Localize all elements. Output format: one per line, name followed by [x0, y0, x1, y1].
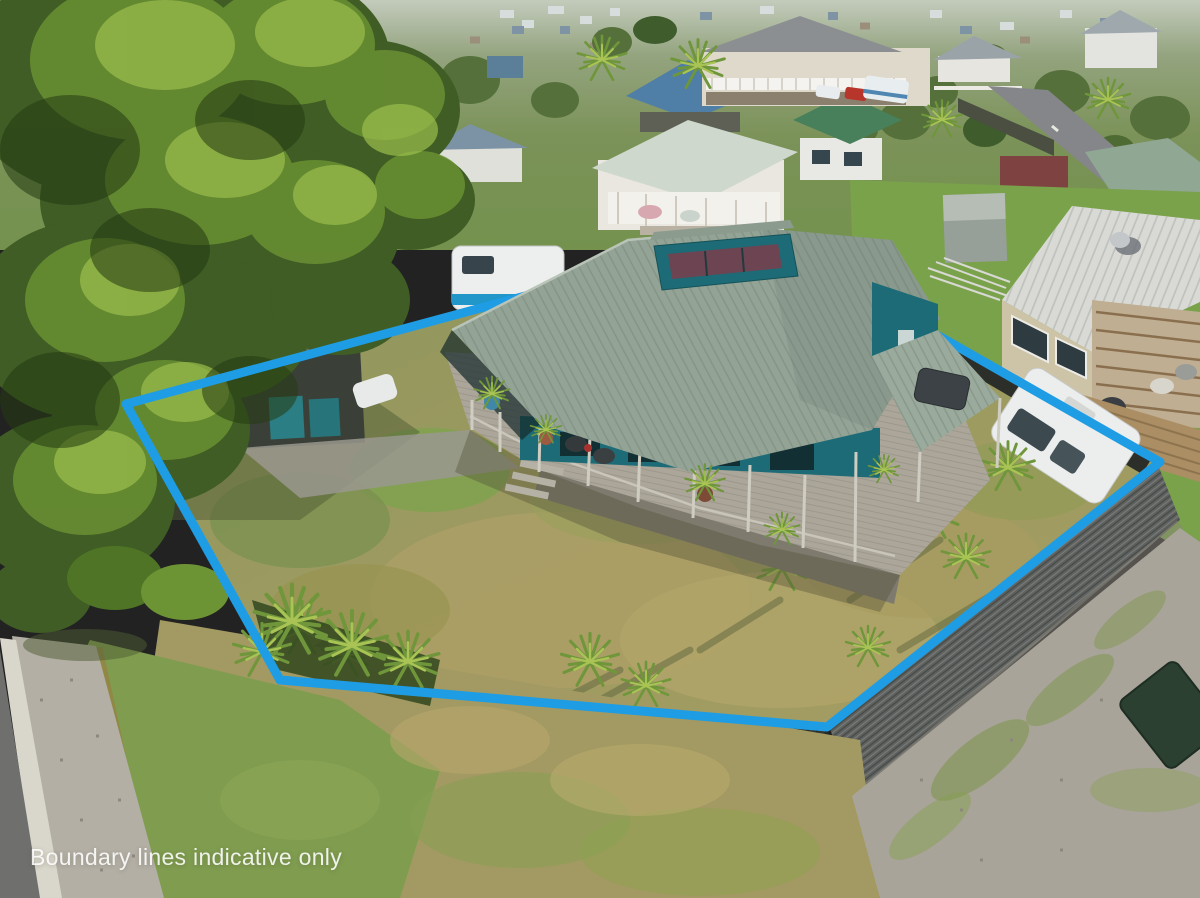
shed-roof: [943, 193, 1006, 221]
house-wall: [1085, 28, 1157, 68]
rv-window: [462, 256, 494, 274]
photo-canvas: [0, 0, 1200, 898]
teal-garage-door: [309, 398, 341, 438]
garden-shed: [943, 193, 1007, 263]
window: [812, 150, 830, 164]
deck-chair: [593, 448, 615, 464]
outdoor-cushions: [1150, 378, 1174, 394]
pink-chair: [638, 205, 662, 219]
outdoor-chair: [680, 210, 700, 222]
tree-shadow: [23, 629, 147, 661]
house-distant-blue: [487, 56, 523, 78]
outdoor-chair: [1175, 364, 1197, 380]
satellite-dish-icon: [1110, 232, 1130, 248]
deck-chair: [565, 436, 587, 452]
red-cushion: [584, 444, 592, 452]
house-wall: [938, 56, 1010, 82]
aerial-property-photo: Boundary lines indicative only: [0, 0, 1200, 898]
window: [844, 152, 862, 166]
maroon-roof: [1000, 156, 1068, 188]
